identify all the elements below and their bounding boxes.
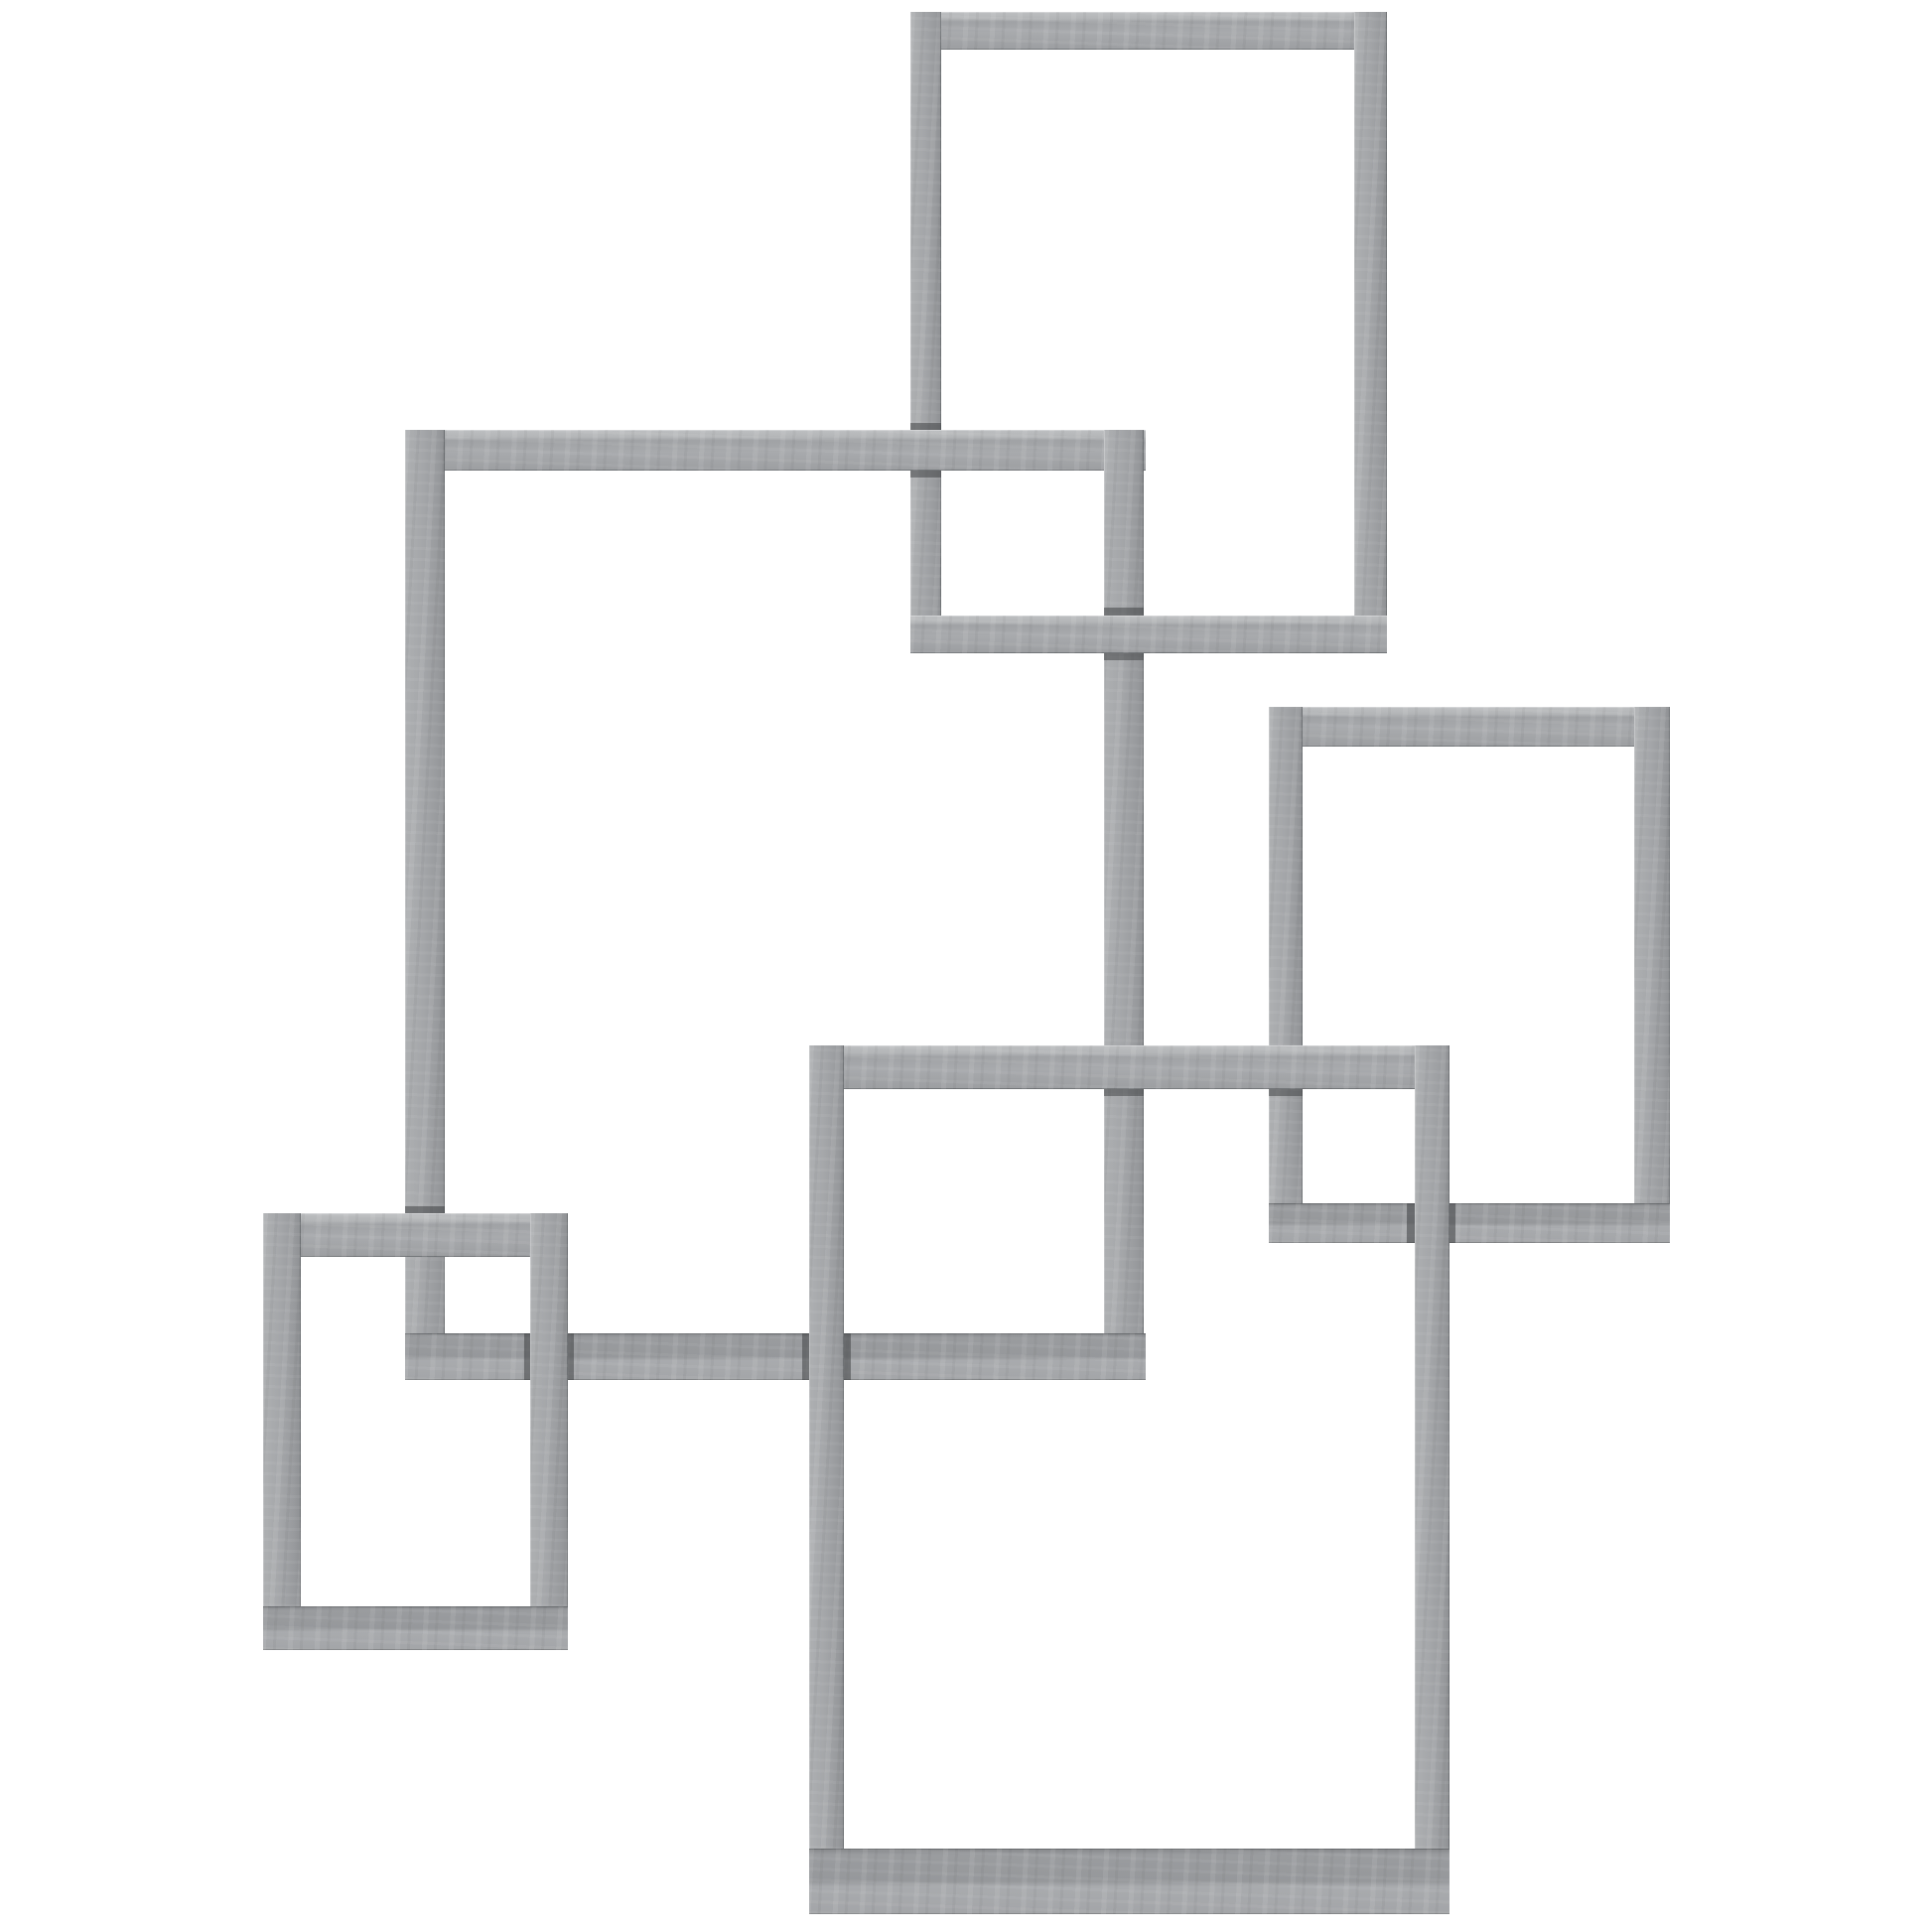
frame-e-bottom-bar [809,1849,1449,1914]
joint-shadow-frame-f-bottom-left-of-frame-e-right [1407,1203,1415,1243]
frame-e-right-bar [1415,1045,1449,1914]
product-photo-wall-shelf [0,0,1932,1932]
interlocking-frames-group [0,0,1932,1932]
frame-f-bottom-bar [1269,1203,1670,1243]
frame-b-bottom-bar [405,1333,1146,1380]
frame-e-left-bar [809,1045,844,1914]
frame-d-bottom-bar [263,1606,568,1650]
frame-b-top-bar [405,430,1146,471]
joint-shadow-frame-b-bottom-right-of-frame-d-right [568,1333,574,1380]
joint-shadow-frame-b-right-above-frame-a-bottom [1104,608,1144,616]
frame-d-top-bar [263,1213,568,1257]
joint-shadow-frame-b-right-below-frame-e-top [1104,1089,1144,1096]
joint-shadow-frame-b-left-above-frame-d-top [405,1206,445,1213]
joint-shadow-frame-a-left-above-frame-b-top [910,423,941,430]
frame-d-right-bar [530,1213,568,1650]
frame-e-top-bar [809,1045,1449,1089]
joint-shadow-frame-a-left-below-frame-b-top [910,471,941,478]
frame-a-left-bar [910,12,941,653]
frame-f-right-bar [1634,707,1670,1243]
joint-shadow-frame-b-bottom-right-of-frame-e-left [844,1333,851,1380]
frame-a-right-bar [1354,12,1387,653]
joint-shadow-frame-f-left-below-frame-e-top [1269,1089,1303,1096]
frame-b-right-bar [1104,430,1144,1380]
joint-shadow-frame-b-right-below-frame-a-bottom [1104,653,1144,660]
frame-d-left-bar [263,1213,301,1650]
frame-f-top-bar [1269,707,1670,747]
joint-shadow-frame-f-bottom-right-of-frame-e-right [1449,1203,1455,1243]
joint-shadow-frame-b-bottom-left-of-frame-e-left [802,1333,809,1380]
frame-a-bottom-bar [910,616,1387,653]
frame-a-top-bar [910,12,1387,50]
frame-f-left-bar [1269,707,1303,1243]
